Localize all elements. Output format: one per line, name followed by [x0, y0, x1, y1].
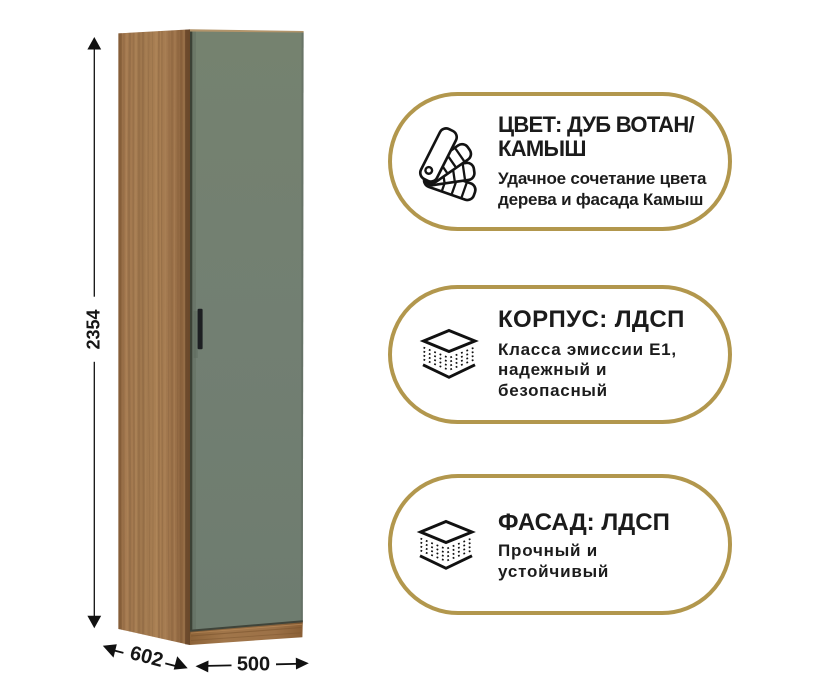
- svg-text:2354: 2354: [84, 309, 104, 349]
- svg-text:602: 602: [128, 642, 166, 672]
- svg-text:500: 500: [237, 653, 270, 675]
